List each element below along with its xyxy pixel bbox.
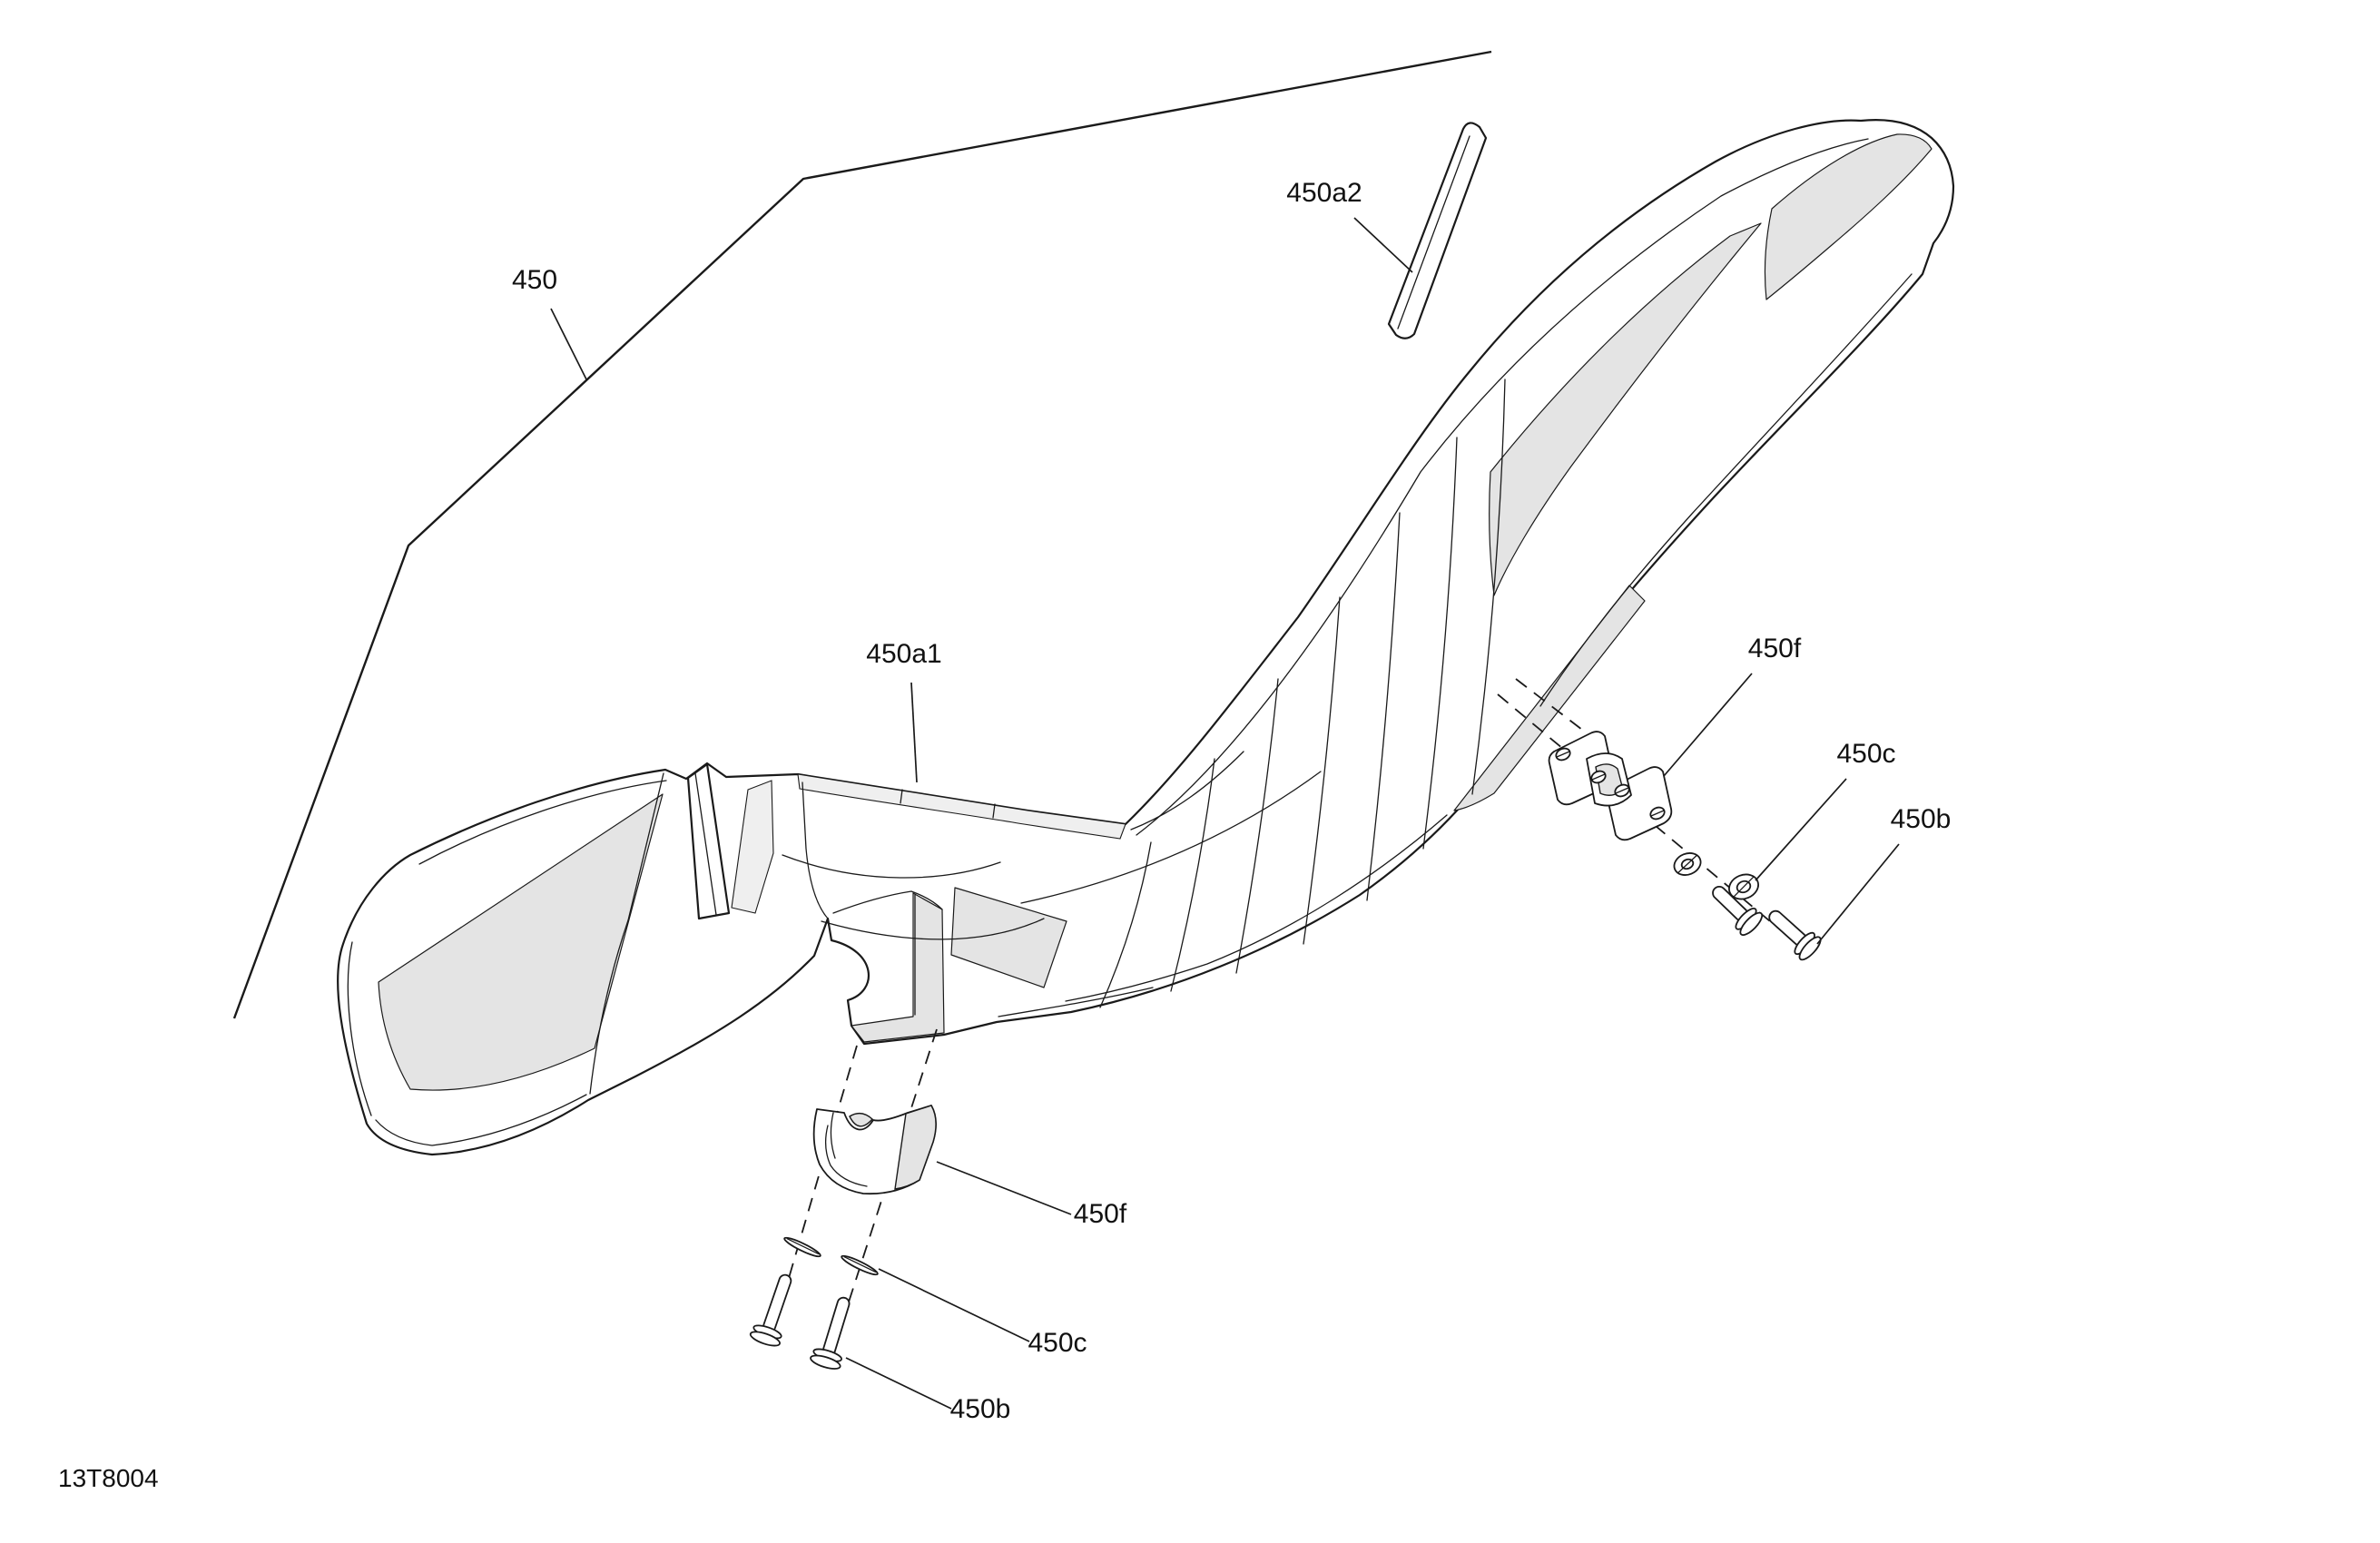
part-label-450: 450: [512, 265, 557, 295]
part-label-450c-right: 450c: [1836, 739, 1895, 769]
part-label-450f-right: 450f: [1748, 634, 1802, 663]
part-label-450b-right: 450b: [1891, 804, 1952, 834]
washer-450c-front-1: [782, 1235, 821, 1259]
bolt-450b-front-1: [749, 1270, 802, 1348]
figure-code: 13T8004: [58, 1464, 159, 1492]
leader-line-450a2: [1354, 218, 1412, 272]
washer-450c-small: [1671, 850, 1704, 880]
part-label-450c-bottom: 450c: [1028, 1328, 1087, 1358]
bolt-450b-rear-2: [1761, 902, 1824, 963]
part-label-450b-bottom: 450b: [950, 1394, 1011, 1424]
bolt-450b-front-2: [809, 1293, 860, 1371]
leader-line-450c-right: [1755, 779, 1846, 880]
part-label-450f-bottom: 450f: [1074, 1199, 1127, 1229]
leader-line-450f-bottom: [937, 1162, 1071, 1214]
parts-diagram-canvas: 450450a2450a1450f450c450b450f450c450b 13…: [0, 0, 2380, 1543]
leader-line-450: [551, 309, 586, 379]
part-label-450a1: 450a1: [866, 639, 941, 669]
leader-line-450b-bottom: [846, 1358, 951, 1409]
parts-figure-page: 450450a2450a1450f450c450b450f450c450b 13…: [0, 0, 2380, 1543]
washer-450c-front-2: [840, 1253, 879, 1277]
seat-body: [338, 120, 1953, 1155]
leader-line-450a1: [911, 683, 917, 782]
latch-bracket-450f: [1549, 732, 1672, 840]
part-label-450a2: 450a2: [1286, 178, 1362, 208]
leader-line-450f-right: [1664, 673, 1752, 776]
leader-line-450b-right: [1817, 844, 1899, 944]
trim-strip-450a2: [1389, 123, 1486, 338]
clamp-notch: [850, 1114, 872, 1126]
clamp-450f-front: [814, 1106, 936, 1194]
leader-line-450c-bottom: [879, 1269, 1029, 1342]
